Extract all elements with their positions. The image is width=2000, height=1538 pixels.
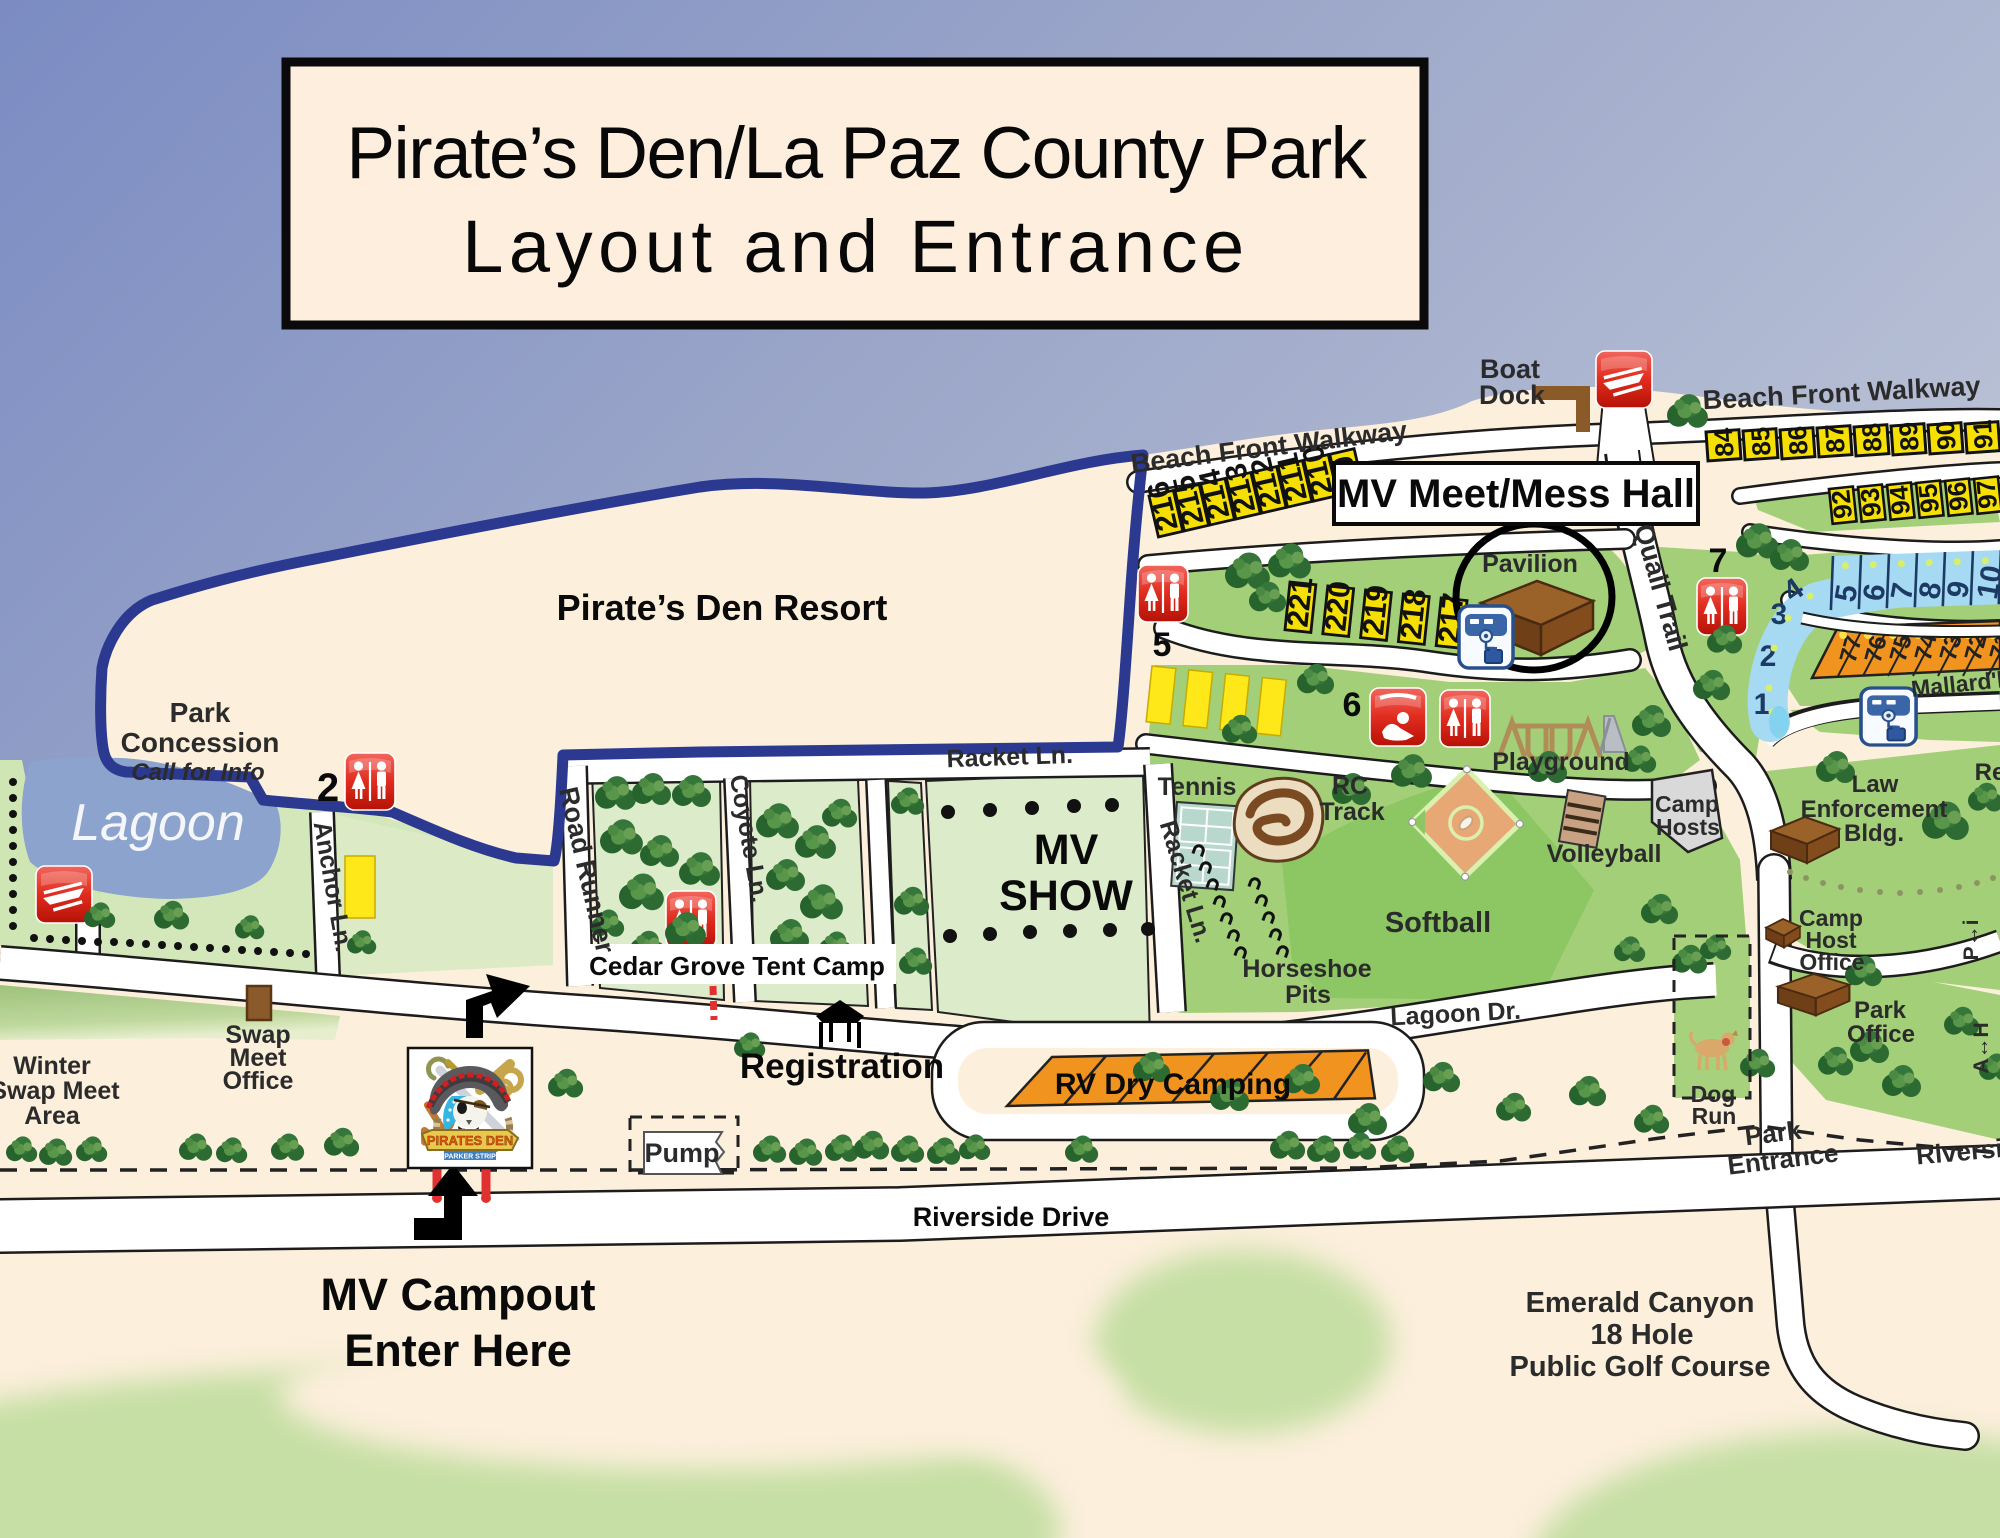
- svg-text:Enter Here: Enter Here: [344, 1325, 572, 1376]
- svg-text:P↔i: P↔i: [1960, 920, 1983, 961]
- svg-text:219: 219: [1357, 583, 1395, 636]
- svg-text:86: 86: [1782, 425, 1814, 456]
- svg-text:84: 84: [1708, 426, 1740, 457]
- svg-text:Riverside Drive: Riverside Drive: [913, 1202, 1110, 1232]
- svg-text:MV Meet/Mess Hall: MV Meet/Mess Hall: [1337, 472, 1695, 516]
- svg-text:Re: Re: [1975, 759, 2000, 786]
- svg-text:Cedar Grove Tent Camp: Cedar Grove Tent Camp: [589, 951, 885, 981]
- svg-text:88: 88: [1856, 422, 1888, 453]
- svg-text:PARKER STRIP: PARKER STRIP: [444, 1154, 496, 1161]
- svg-text:2: 2: [317, 766, 339, 810]
- svg-text:7: 7: [1709, 542, 1728, 580]
- svg-text:Area: Area: [24, 1102, 81, 1130]
- svg-text:Playground: Playground: [1492, 748, 1630, 776]
- svg-text:Volleyball: Volleyball: [1547, 840, 1662, 868]
- svg-text:Call for Info: Call for Info: [131, 759, 264, 786]
- svg-text:Dock: Dock: [1479, 380, 1546, 410]
- svg-text:Pirate’s Den Resort: Pirate’s Den Resort: [557, 587, 888, 628]
- svg-text:Track: Track: [1319, 798, 1384, 826]
- svg-text:Pirate’s Den/La Paz County Par: Pirate’s Den/La Paz County Park: [346, 113, 1367, 194]
- svg-text:Office: Office: [1799, 949, 1864, 975]
- svg-text:Bldg.: Bldg.: [1844, 820, 1904, 847]
- svg-text:10: 10: [1971, 563, 2000, 602]
- svg-text:97: 97: [1970, 478, 2000, 510]
- svg-text:Emerald Canyon: Emerald Canyon: [1526, 1287, 1755, 1319]
- svg-text:Park: Park: [170, 697, 231, 728]
- svg-text:89: 89: [1893, 421, 1925, 452]
- svg-text:221: 221: [1281, 576, 1319, 629]
- svg-text:18 Hole: 18 Hole: [1590, 1319, 1693, 1351]
- svg-text:Registration: Registration: [740, 1047, 944, 1086]
- svg-text:96: 96: [1941, 480, 1974, 512]
- svg-text:Lagoon: Lagoon: [71, 794, 245, 852]
- svg-text:Swap Meet: Swap Meet: [0, 1077, 120, 1105]
- svg-text:85: 85: [1745, 426, 1777, 457]
- svg-text:Office: Office: [1847, 1021, 1915, 1048]
- svg-text:3: 3: [1771, 598, 1788, 631]
- svg-text:95: 95: [1912, 482, 1945, 514]
- svg-text:92: 92: [1825, 488, 1858, 520]
- svg-text:Layout and Entrance: Layout and Entrance: [462, 205, 1249, 288]
- svg-text:RV Dry Camping: RV Dry Camping: [1055, 1068, 1291, 1101]
- svg-text:Winter: Winter: [13, 1052, 91, 1080]
- svg-text:Pump: Pump: [644, 1138, 719, 1168]
- svg-text:MV Campout: MV Campout: [321, 1269, 596, 1320]
- svg-text:SHOW: SHOW: [999, 872, 1133, 920]
- svg-text:90: 90: [1930, 420, 1962, 451]
- svg-text:87: 87: [1819, 423, 1851, 454]
- svg-text:Softball: Softball: [1385, 907, 1491, 939]
- svg-text:220: 220: [1319, 580, 1357, 633]
- svg-text:PIRATES DEN: PIRATES DEN: [427, 1133, 513, 1148]
- svg-text:Tennis: Tennis: [1158, 773, 1237, 801]
- svg-text:Public Golf Course: Public Golf Course: [1509, 1351, 1770, 1383]
- svg-text:218: 218: [1395, 587, 1433, 640]
- svg-text:5: 5: [1153, 626, 1172, 664]
- svg-text:Horseshoe: Horseshoe: [1242, 955, 1371, 983]
- svg-text:93: 93: [1854, 486, 1887, 518]
- svg-text:MV: MV: [1034, 826, 1099, 874]
- svg-text:6: 6: [1343, 686, 1362, 724]
- svg-text:94: 94: [1883, 484, 1916, 516]
- svg-text:Office: Office: [223, 1067, 294, 1095]
- svg-text:Racket Ln.: Racket Ln.: [946, 741, 1073, 773]
- svg-text:Enforcement: Enforcement: [1801, 796, 1948, 823]
- svg-text:Park: Park: [1854, 997, 1907, 1024]
- svg-text:Law: Law: [1852, 771, 1899, 798]
- svg-text:Concession: Concession: [121, 727, 280, 758]
- svg-text:Run: Run: [1692, 1103, 1737, 1129]
- svg-text:A↔H: A↔H: [1970, 1022, 1993, 1073]
- svg-text:Pits: Pits: [1285, 981, 1331, 1009]
- svg-text:Pavilion: Pavilion: [1482, 550, 1578, 578]
- svg-text:RC: RC: [1332, 772, 1368, 800]
- svg-text:Hosts: Hosts: [1656, 814, 1720, 840]
- svg-text:1: 1: [1754, 688, 1771, 721]
- svg-text:91: 91: [1967, 419, 1999, 450]
